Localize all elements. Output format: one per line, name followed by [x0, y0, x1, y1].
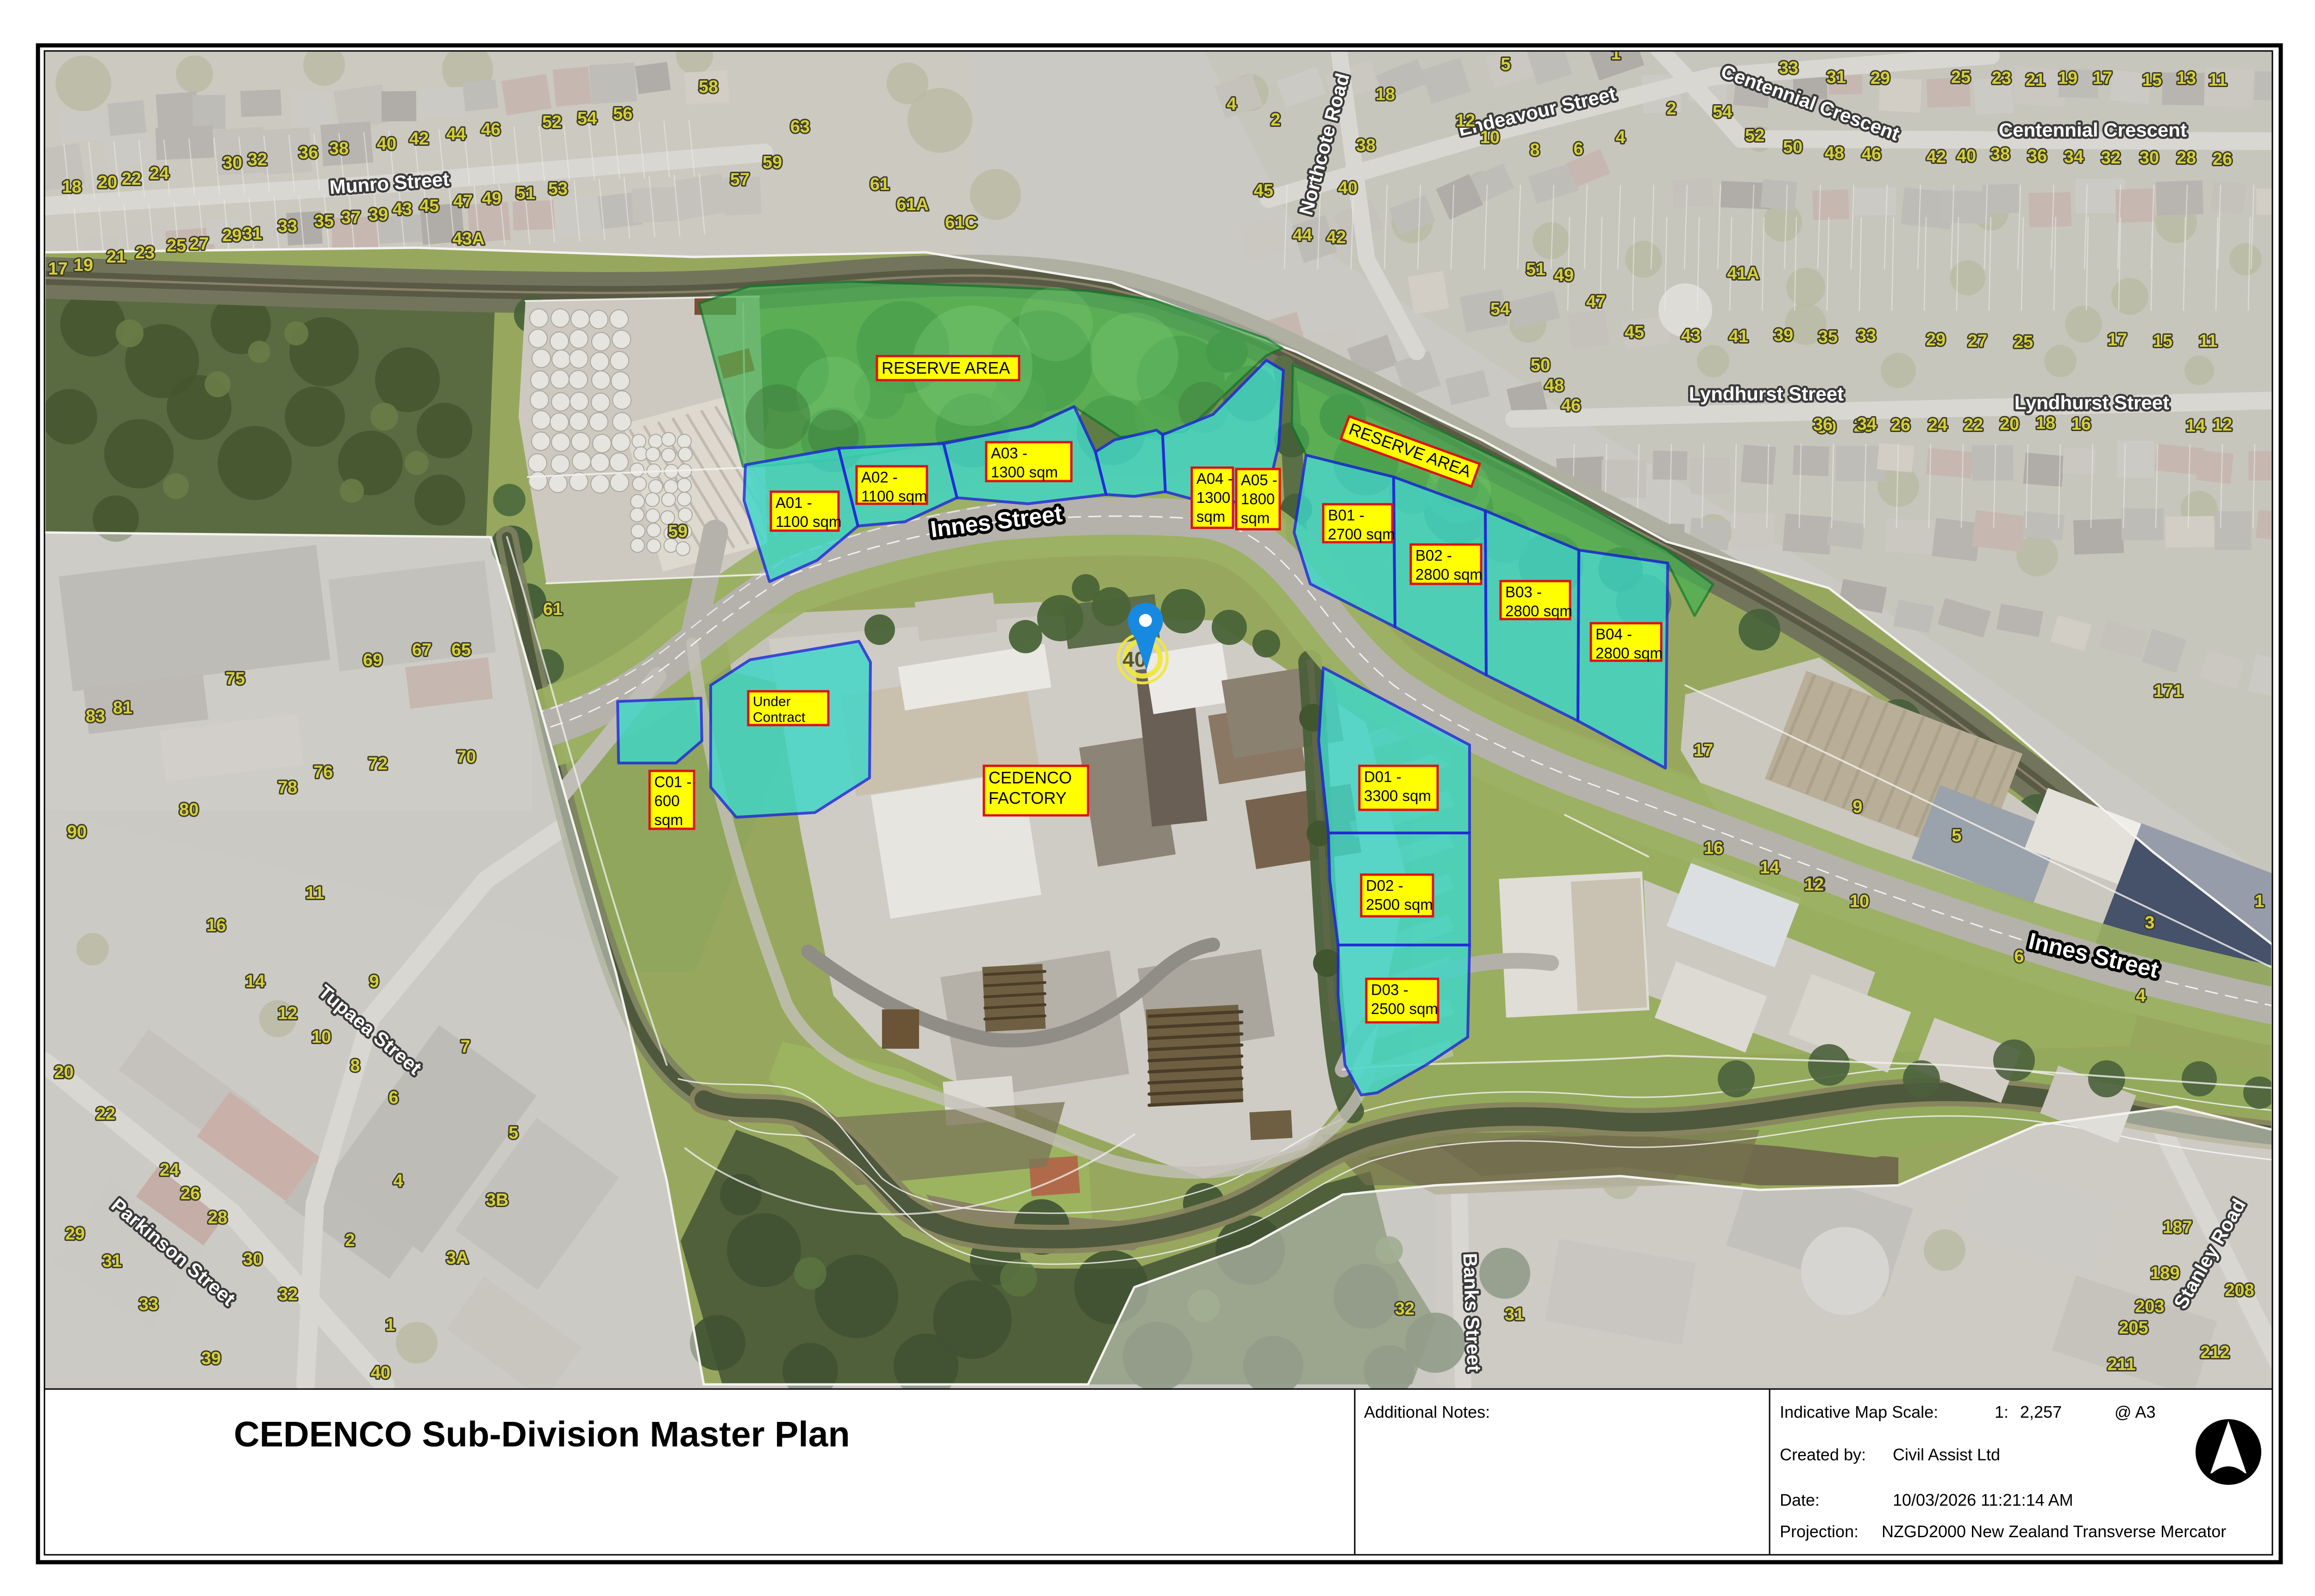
svg-text:B01 -: B01 - [1328, 507, 1364, 524]
svg-text:65: 65 [451, 640, 471, 660]
svg-text:45: 45 [1254, 181, 1273, 200]
svg-text:Banks Street: Banks Street [1459, 1252, 1485, 1372]
svg-text:43A: 43A [452, 229, 485, 249]
svg-text:18: 18 [2036, 413, 2055, 433]
svg-text:A04 -: A04 - [1196, 470, 1233, 487]
svg-text:36: 36 [2027, 146, 2047, 166]
svg-text:1300: 1300 [1196, 489, 1230, 506]
svg-text:25: 25 [167, 236, 186, 256]
svg-text:76: 76 [313, 763, 333, 782]
svg-text:22: 22 [1964, 415, 1983, 435]
svg-text:17: 17 [1694, 741, 1713, 760]
svg-text:46: 46 [1561, 396, 1581, 415]
svg-text:52: 52 [1745, 126, 1764, 145]
svg-text:A01 -: A01 - [776, 494, 812, 511]
svg-text:12: 12 [2213, 415, 2232, 435]
svg-text:70: 70 [457, 747, 476, 767]
svg-text:205: 205 [2119, 1318, 2148, 1338]
svg-text:B04 -: B04 - [1595, 626, 1632, 643]
svg-text:11: 11 [2209, 70, 2227, 90]
svg-text:40: 40 [1338, 178, 1358, 198]
svg-text:8: 8 [350, 1056, 360, 1076]
svg-text:46: 46 [481, 120, 501, 139]
svg-text:9: 9 [369, 972, 379, 991]
svg-text:CEDENCO: CEDENCO [989, 768, 1072, 787]
svg-text:19: 19 [74, 256, 93, 275]
svg-text:Civil Assist Ltd: Civil Assist Ltd [1893, 1445, 2000, 1464]
svg-text:2,257: 2,257 [2020, 1402, 2062, 1421]
svg-text:61: 61 [543, 600, 563, 619]
svg-text:Lyndhurst Street: Lyndhurst Street [1689, 383, 1844, 405]
svg-text:38: 38 [1356, 136, 1376, 155]
svg-text:5: 5 [508, 1123, 518, 1143]
svg-text:44: 44 [1293, 225, 1312, 245]
svg-text:47: 47 [453, 192, 473, 211]
svg-text:11: 11 [2199, 332, 2217, 351]
svg-text:2: 2 [345, 1231, 355, 1250]
svg-text:27: 27 [189, 234, 209, 254]
svg-text:22: 22 [96, 1104, 115, 1124]
svg-text:3B: 3B [486, 1190, 509, 1210]
svg-text:21: 21 [2026, 70, 2045, 90]
svg-text:17: 17 [2108, 330, 2127, 350]
svg-text:19: 19 [2058, 69, 2077, 88]
svg-text:10: 10 [1480, 128, 1500, 147]
svg-text:41: 41 [1729, 327, 1748, 346]
svg-text:15: 15 [2142, 70, 2162, 90]
svg-text:1300 sqm: 1300 sqm [991, 463, 1058, 481]
svg-text:50: 50 [1531, 356, 1550, 375]
svg-text:C01 -: C01 - [654, 773, 692, 790]
svg-text:D01 -: D01 - [1364, 768, 1402, 785]
svg-text:28: 28 [208, 1208, 227, 1227]
svg-text:4: 4 [1226, 94, 1236, 114]
svg-text:38: 38 [1990, 144, 2010, 164]
svg-text:31: 31 [1827, 68, 1846, 87]
svg-text:35: 35 [314, 212, 334, 231]
svg-text:12: 12 [278, 1004, 297, 1023]
svg-text:6: 6 [1573, 139, 1583, 159]
svg-text:83: 83 [86, 707, 105, 726]
svg-text:39: 39 [201, 1349, 221, 1368]
svg-text:20: 20 [98, 173, 117, 192]
svg-text:31: 31 [102, 1252, 122, 1271]
svg-text:30: 30 [243, 1250, 263, 1269]
svg-text:NZGD2000 New Zealand Transvers: NZGD2000 New Zealand Transverse Mercator [1882, 1522, 2226, 1541]
svg-text:49: 49 [482, 189, 501, 208]
svg-text:23: 23 [1992, 69, 2011, 88]
svg-text:9: 9 [1852, 797, 1862, 817]
svg-text:Centennial Crescent: Centennial Crescent [1999, 119, 2187, 141]
svg-text:B02 -: B02 - [1415, 547, 1452, 564]
svg-text:1800: 1800 [1241, 490, 1275, 507]
svg-text:40: 40 [1957, 146, 1976, 166]
svg-text:2700 sqm: 2700 sqm [1328, 526, 1395, 543]
svg-text:48: 48 [1825, 144, 1844, 163]
svg-text:4: 4 [1615, 128, 1625, 147]
svg-text:Date:: Date: [1780, 1490, 1820, 1509]
svg-text:2800 sqm: 2800 sqm [1595, 645, 1663, 662]
svg-text:23: 23 [135, 243, 155, 263]
svg-text:43: 43 [393, 200, 412, 219]
svg-text:39: 39 [369, 205, 388, 225]
svg-text:31: 31 [1505, 1305, 1524, 1324]
svg-text:80: 80 [179, 800, 199, 820]
svg-text:12: 12 [1804, 875, 1824, 895]
svg-text:8: 8 [1530, 140, 1539, 160]
svg-text:51: 51 [516, 184, 535, 203]
svg-text:52: 52 [542, 113, 562, 132]
svg-text:58: 58 [699, 77, 718, 97]
svg-text:600: 600 [654, 792, 680, 809]
svg-text:5: 5 [1501, 55, 1510, 74]
svg-text:17: 17 [48, 259, 68, 279]
svg-text:29: 29 [1926, 330, 1946, 350]
svg-text:2800 sqm: 2800 sqm [1505, 602, 1572, 620]
svg-text:40: 40 [377, 134, 396, 154]
svg-text:A02 -: A02 - [861, 469, 898, 486]
svg-text:75: 75 [225, 669, 245, 688]
svg-text:54: 54 [1490, 300, 1510, 319]
svg-text:63: 63 [790, 117, 810, 137]
svg-text:22: 22 [122, 169, 141, 189]
svg-text:211: 211 [2107, 1355, 2135, 1374]
svg-text:Under: Under [753, 694, 791, 709]
svg-text:RESERVE AREA: RESERVE AREA [882, 358, 1010, 377]
svg-text:45: 45 [1625, 323, 1644, 342]
svg-text:38: 38 [329, 139, 349, 158]
svg-text:61C: 61C [945, 213, 977, 232]
svg-text:29: 29 [65, 1224, 85, 1244]
svg-text:32: 32 [248, 150, 267, 169]
svg-text:18: 18 [1376, 85, 1395, 104]
svg-text:56: 56 [613, 104, 632, 124]
svg-text:67: 67 [412, 640, 432, 660]
svg-text:212: 212 [2200, 1343, 2229, 1362]
svg-text:Additional Notes:: Additional Notes: [1364, 1402, 1490, 1421]
svg-text:24: 24 [1928, 415, 1947, 435]
svg-text:4: 4 [393, 1171, 403, 1191]
svg-text:6: 6 [2014, 947, 2024, 966]
svg-text:78: 78 [278, 778, 297, 797]
svg-text:3: 3 [2145, 913, 2154, 933]
svg-text:53: 53 [548, 179, 568, 199]
svg-text:69: 69 [363, 651, 382, 670]
svg-text:34: 34 [1857, 414, 1877, 434]
svg-text:B03 -: B03 - [1505, 583, 1542, 601]
svg-text:30: 30 [2140, 148, 2159, 168]
svg-text:A05 -: A05 - [1241, 471, 1277, 488]
svg-text:10: 10 [312, 1027, 331, 1047]
svg-text:208: 208 [2225, 1281, 2254, 1300]
svg-text:Projection:: Projection: [1780, 1522, 1858, 1541]
svg-text:42: 42 [1927, 147, 1946, 167]
svg-text:Lyndhurst Street: Lyndhurst Street [2015, 392, 2169, 413]
svg-text:18: 18 [62, 177, 81, 197]
svg-text:14: 14 [2186, 416, 2205, 436]
svg-text:2: 2 [1270, 110, 1280, 130]
svg-text:3A: 3A [446, 1248, 469, 1268]
svg-text:CEDENCO Sub-Division Master Pl: CEDENCO Sub-Division Master Plan [234, 1414, 850, 1454]
svg-text:11: 11 [306, 883, 324, 903]
svg-text:@ A3: @ A3 [2115, 1402, 2156, 1421]
svg-text:33: 33 [139, 1295, 158, 1314]
svg-text:44: 44 [446, 125, 466, 144]
svg-text:61: 61 [870, 175, 889, 194]
svg-text:2500 sqm: 2500 sqm [1366, 896, 1433, 913]
svg-text:25: 25 [2014, 332, 2033, 352]
svg-text:36: 36 [1813, 415, 1833, 434]
svg-text:16: 16 [1704, 839, 1723, 858]
svg-text:14: 14 [1760, 858, 1779, 877]
svg-text:1:: 1: [1995, 1402, 2008, 1421]
svg-text:54: 54 [577, 109, 597, 128]
svg-text:3300 sqm: 3300 sqm [1364, 787, 1431, 804]
svg-text:33: 33 [1857, 326, 1876, 345]
svg-text:31: 31 [243, 224, 262, 244]
svg-text:48: 48 [1545, 376, 1564, 395]
svg-text:2: 2 [1666, 99, 1676, 119]
svg-text:37: 37 [341, 208, 361, 227]
svg-text:35: 35 [1818, 327, 1838, 347]
svg-text:12: 12 [1456, 111, 1475, 131]
svg-text:1100 sqm: 1100 sqm [776, 513, 841, 530]
svg-text:25: 25 [1951, 68, 1971, 87]
svg-text:Contract: Contract [753, 710, 806, 725]
svg-text:189: 189 [2150, 1264, 2179, 1283]
svg-text:26: 26 [1891, 415, 1910, 435]
svg-text:32: 32 [2101, 148, 2121, 168]
svg-text:FACTORY: FACTORY [989, 789, 1067, 807]
svg-text:39: 39 [1774, 325, 1793, 345]
svg-text:sqm: sqm [1241, 509, 1270, 526]
svg-text:30: 30 [223, 153, 242, 173]
svg-text:50: 50 [1783, 138, 1802, 157]
svg-text:59: 59 [763, 153, 782, 172]
svg-text:29: 29 [222, 226, 242, 245]
svg-text:27: 27 [1968, 332, 1987, 351]
svg-text:24: 24 [150, 164, 169, 183]
svg-text:sqm: sqm [1196, 508, 1225, 525]
svg-text:171: 171 [2153, 682, 2183, 701]
svg-text:42: 42 [1326, 228, 1346, 247]
svg-text:2800 sqm: 2800 sqm [1415, 566, 1483, 583]
svg-text:33: 33 [278, 217, 297, 236]
svg-text:81: 81 [113, 698, 132, 718]
svg-text:1: 1 [385, 1315, 395, 1335]
svg-text:14: 14 [245, 972, 265, 991]
svg-text:7: 7 [460, 1037, 470, 1057]
svg-text:54: 54 [1713, 102, 1732, 122]
svg-text:47: 47 [1586, 292, 1606, 312]
svg-text:16: 16 [206, 916, 226, 935]
svg-text:90: 90 [67, 822, 87, 842]
svg-text:42: 42 [409, 129, 429, 149]
svg-text:10/03/2026 11:21:14 AM: 10/03/2026 11:21:14 AM [1893, 1490, 2073, 1509]
svg-text:21: 21 [106, 247, 126, 267]
svg-text:1100 sqm: 1100 sqm [861, 488, 927, 505]
svg-text:10: 10 [1850, 892, 1869, 911]
svg-text:Created by:: Created by: [1780, 1445, 1866, 1464]
svg-text:57: 57 [730, 170, 750, 189]
svg-text:2500 sqm: 2500 sqm [1371, 1000, 1438, 1017]
svg-text:33: 33 [1779, 58, 1798, 78]
svg-text:203: 203 [2135, 1297, 2164, 1316]
svg-text:16: 16 [2071, 414, 2091, 434]
svg-text:59: 59 [668, 522, 688, 541]
svg-text:6: 6 [388, 1088, 398, 1108]
svg-text:32: 32 [278, 1285, 298, 1304]
svg-text:61A: 61A [896, 195, 929, 214]
svg-text:15: 15 [2153, 332, 2172, 351]
svg-text:45: 45 [419, 196, 439, 216]
svg-text:187: 187 [2163, 1218, 2192, 1237]
svg-text:sqm: sqm [654, 811, 683, 828]
svg-text:40: 40 [371, 1363, 390, 1383]
svg-text:72: 72 [368, 754, 388, 774]
svg-text:34: 34 [2064, 147, 2083, 167]
svg-text:20: 20 [2000, 414, 2019, 434]
svg-text:49: 49 [1554, 266, 1574, 285]
svg-text:5: 5 [1952, 826, 1961, 845]
svg-text:26: 26 [2213, 150, 2232, 169]
svg-text:26: 26 [181, 1184, 200, 1203]
svg-text:D03 -: D03 - [1371, 981, 1408, 998]
svg-text:1: 1 [2254, 892, 2264, 911]
svg-text:32: 32 [1395, 1299, 1414, 1319]
svg-text:Indicative Map Scale:: Indicative Map Scale: [1780, 1402, 1938, 1421]
svg-text:29: 29 [1871, 69, 1890, 88]
svg-text:4: 4 [2136, 986, 2146, 1006]
svg-text:24: 24 [160, 1160, 179, 1180]
svg-text:41A: 41A [1727, 264, 1759, 283]
svg-text:28: 28 [2177, 148, 2196, 168]
svg-text:46: 46 [1862, 144, 1881, 164]
svg-text:43: 43 [1681, 326, 1701, 345]
svg-text:36: 36 [299, 143, 318, 163]
svg-text:D02 -: D02 - [1366, 877, 1403, 894]
svg-text:51: 51 [1526, 260, 1545, 279]
svg-text:17: 17 [2093, 69, 2112, 88]
svg-text:20: 20 [54, 1063, 74, 1082]
svg-text:13: 13 [2177, 69, 2196, 88]
svg-text:A03 -: A03 - [991, 444, 1027, 462]
